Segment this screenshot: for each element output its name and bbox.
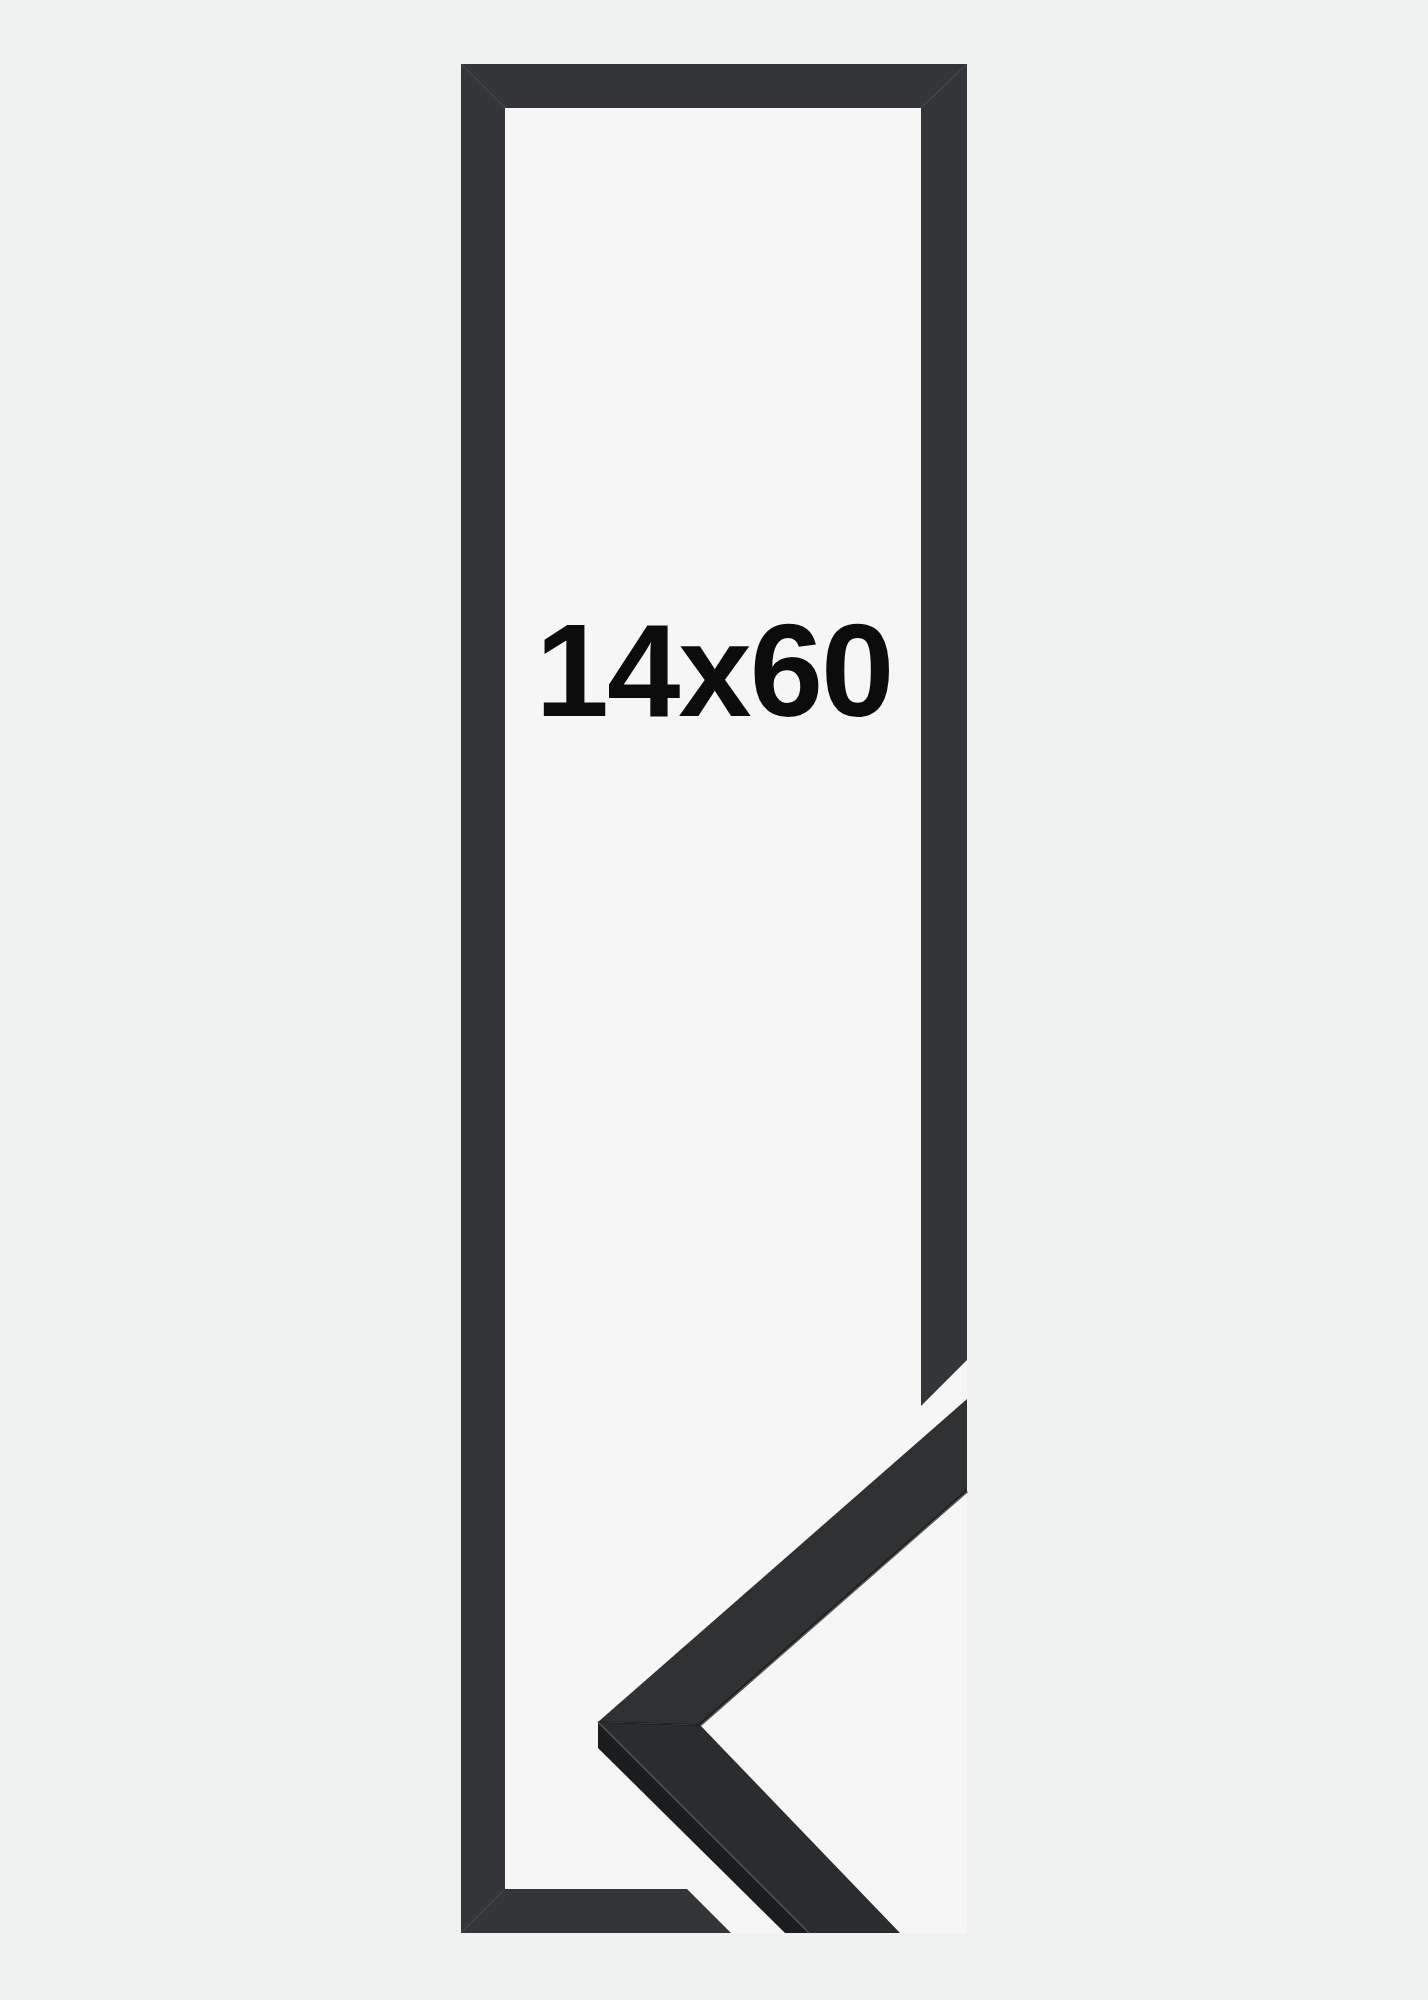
size-label: 14x60 <box>461 605 967 737</box>
frame-bar-left <box>461 64 505 1933</box>
product-image: 14x60 <box>0 0 1428 2000</box>
frame-graphic <box>0 0 1428 2000</box>
frame-bar-bottom <box>461 1889 731 1933</box>
frame-bar-top <box>461 64 967 108</box>
